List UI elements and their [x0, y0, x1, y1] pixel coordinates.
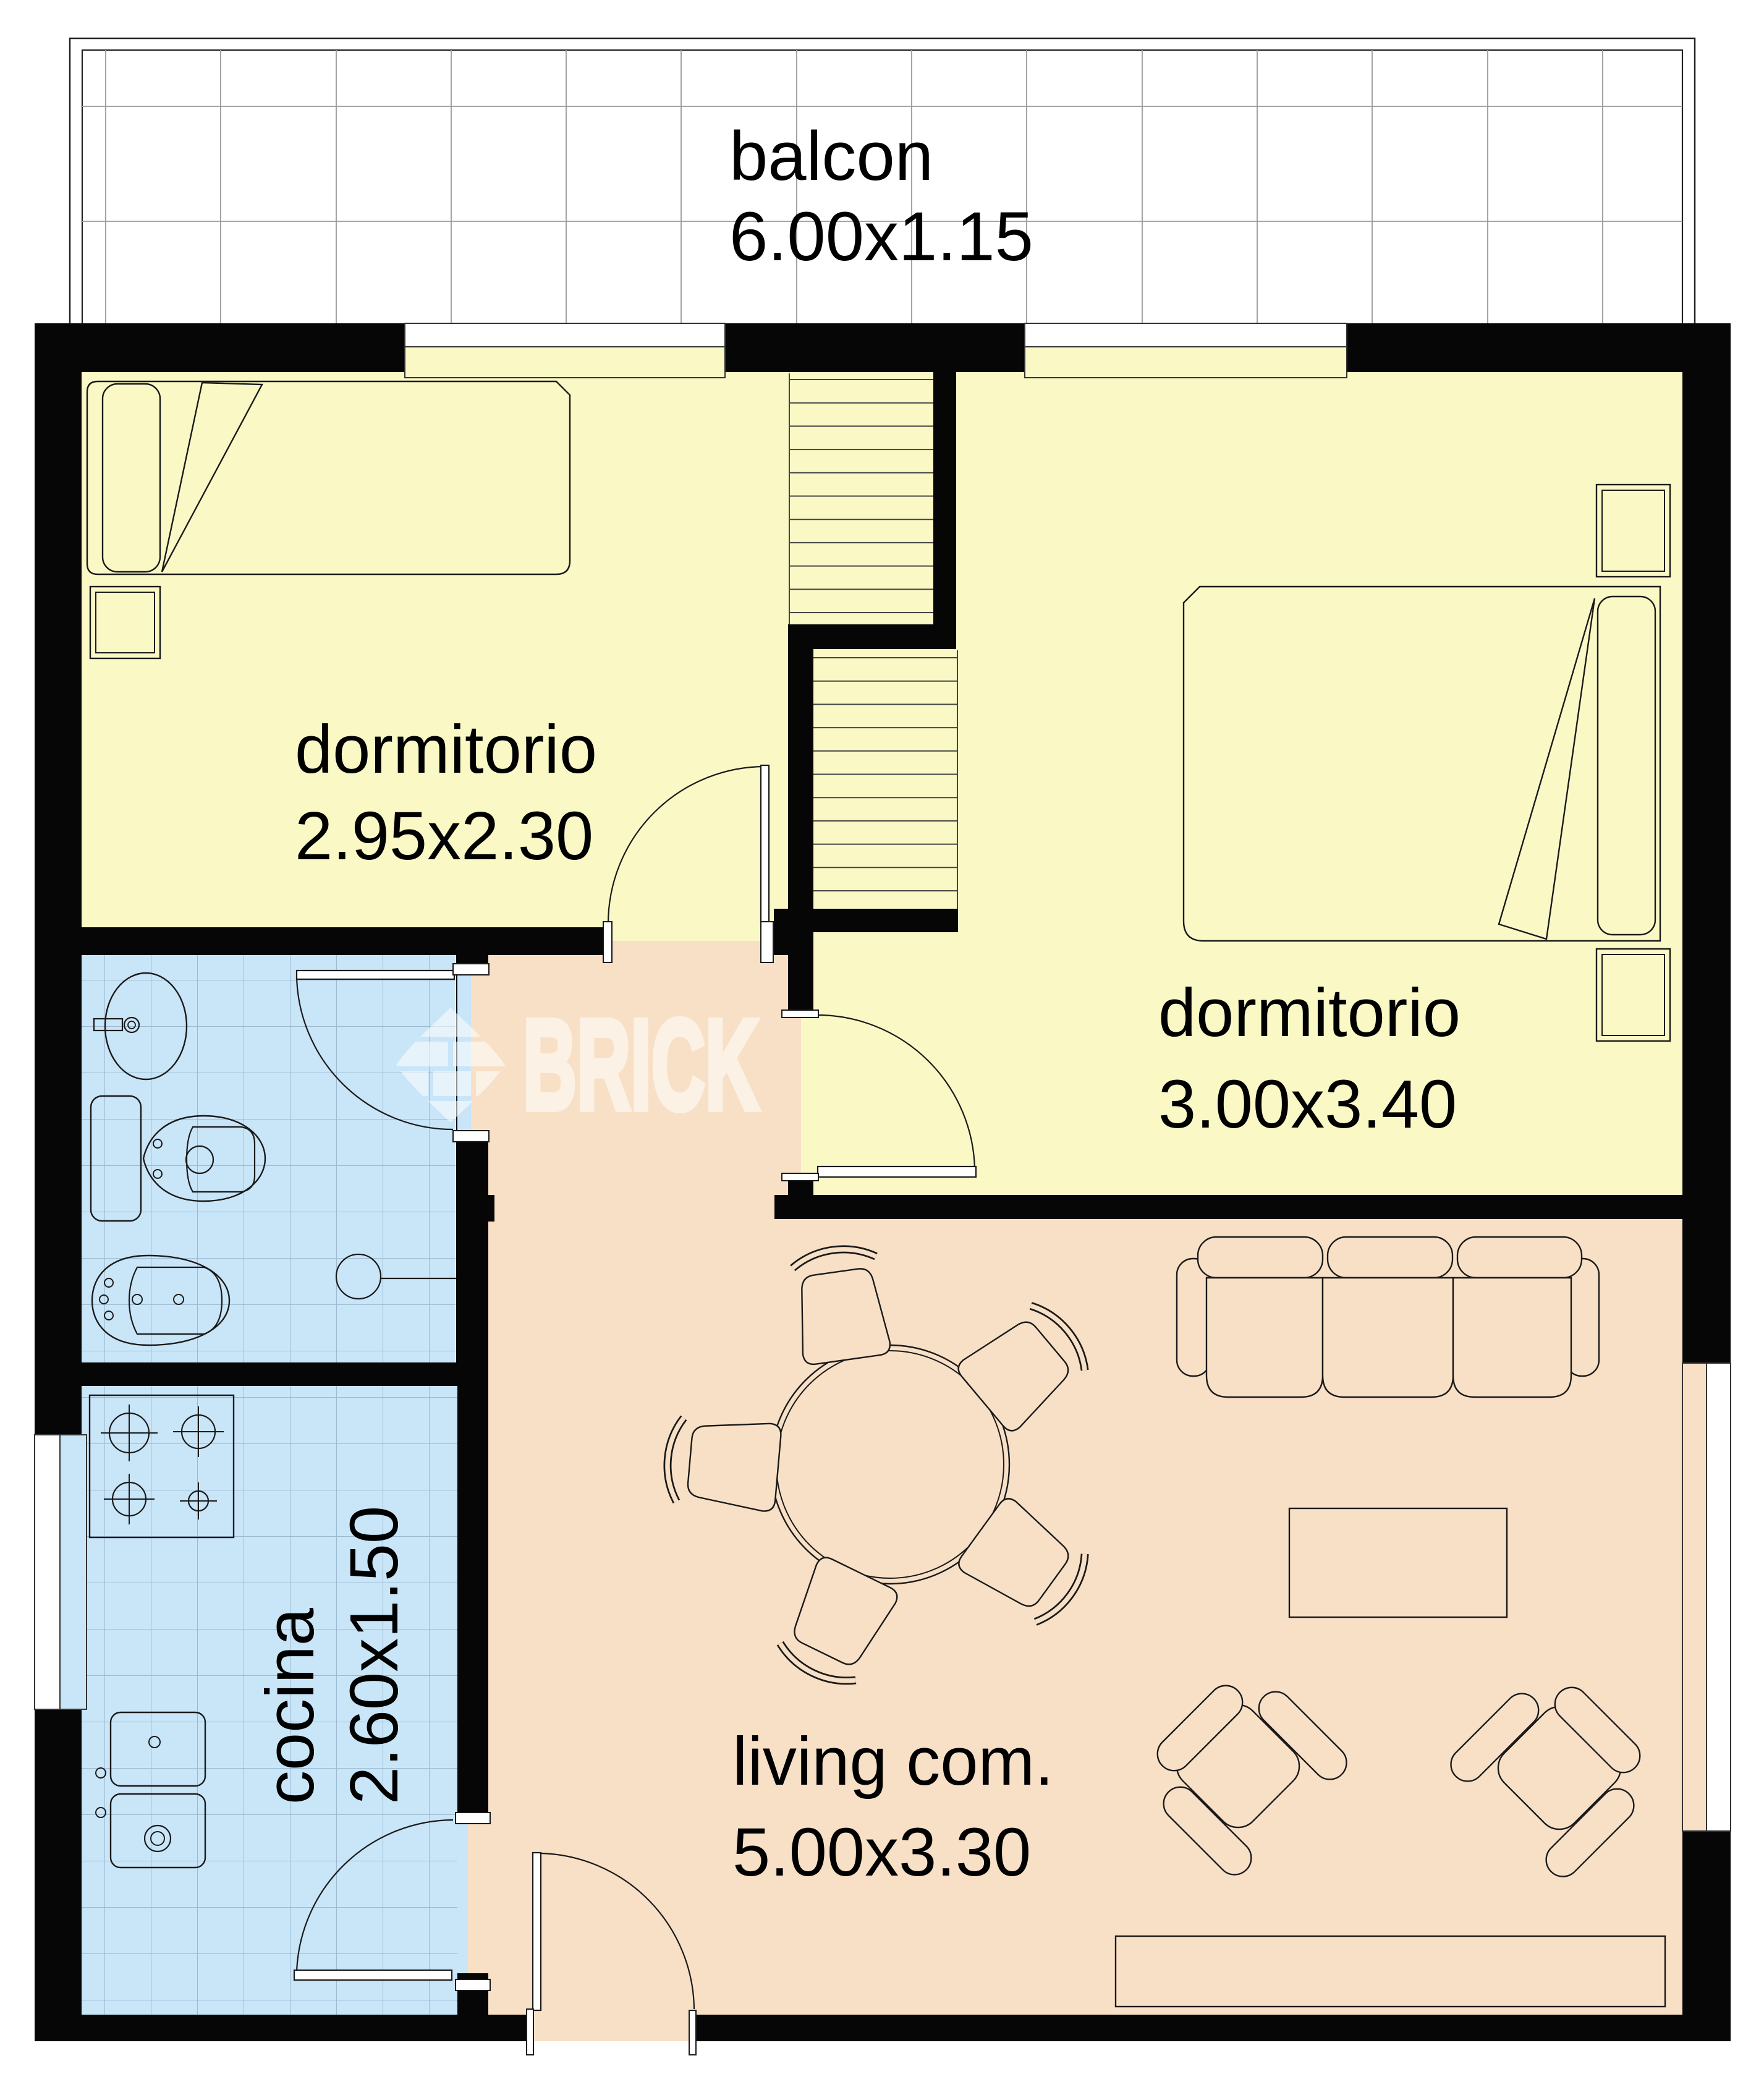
svg-text:2.60x1.50: 2.60x1.50 [336, 1506, 412, 1804]
svg-text:dormitorio: dormitorio [1158, 975, 1461, 1051]
svg-text:6.00x1.15: 6.00x1.15 [729, 198, 1033, 275]
svg-text:2.95x2.30: 2.95x2.30 [295, 798, 593, 874]
svg-text:living com.: living com. [732, 1723, 1054, 1800]
svg-text:3.00x3.40: 3.00x3.40 [1158, 1066, 1457, 1142]
svg-text:cocina: cocina [252, 1607, 328, 1804]
svg-text:5.00x3.30: 5.00x3.30 [732, 1814, 1031, 1890]
svg-text:dormitorio: dormitorio [295, 712, 597, 788]
svg-text:balcon: balcon [729, 117, 933, 195]
svg-text:BRICK: BRICK [523, 993, 759, 1137]
